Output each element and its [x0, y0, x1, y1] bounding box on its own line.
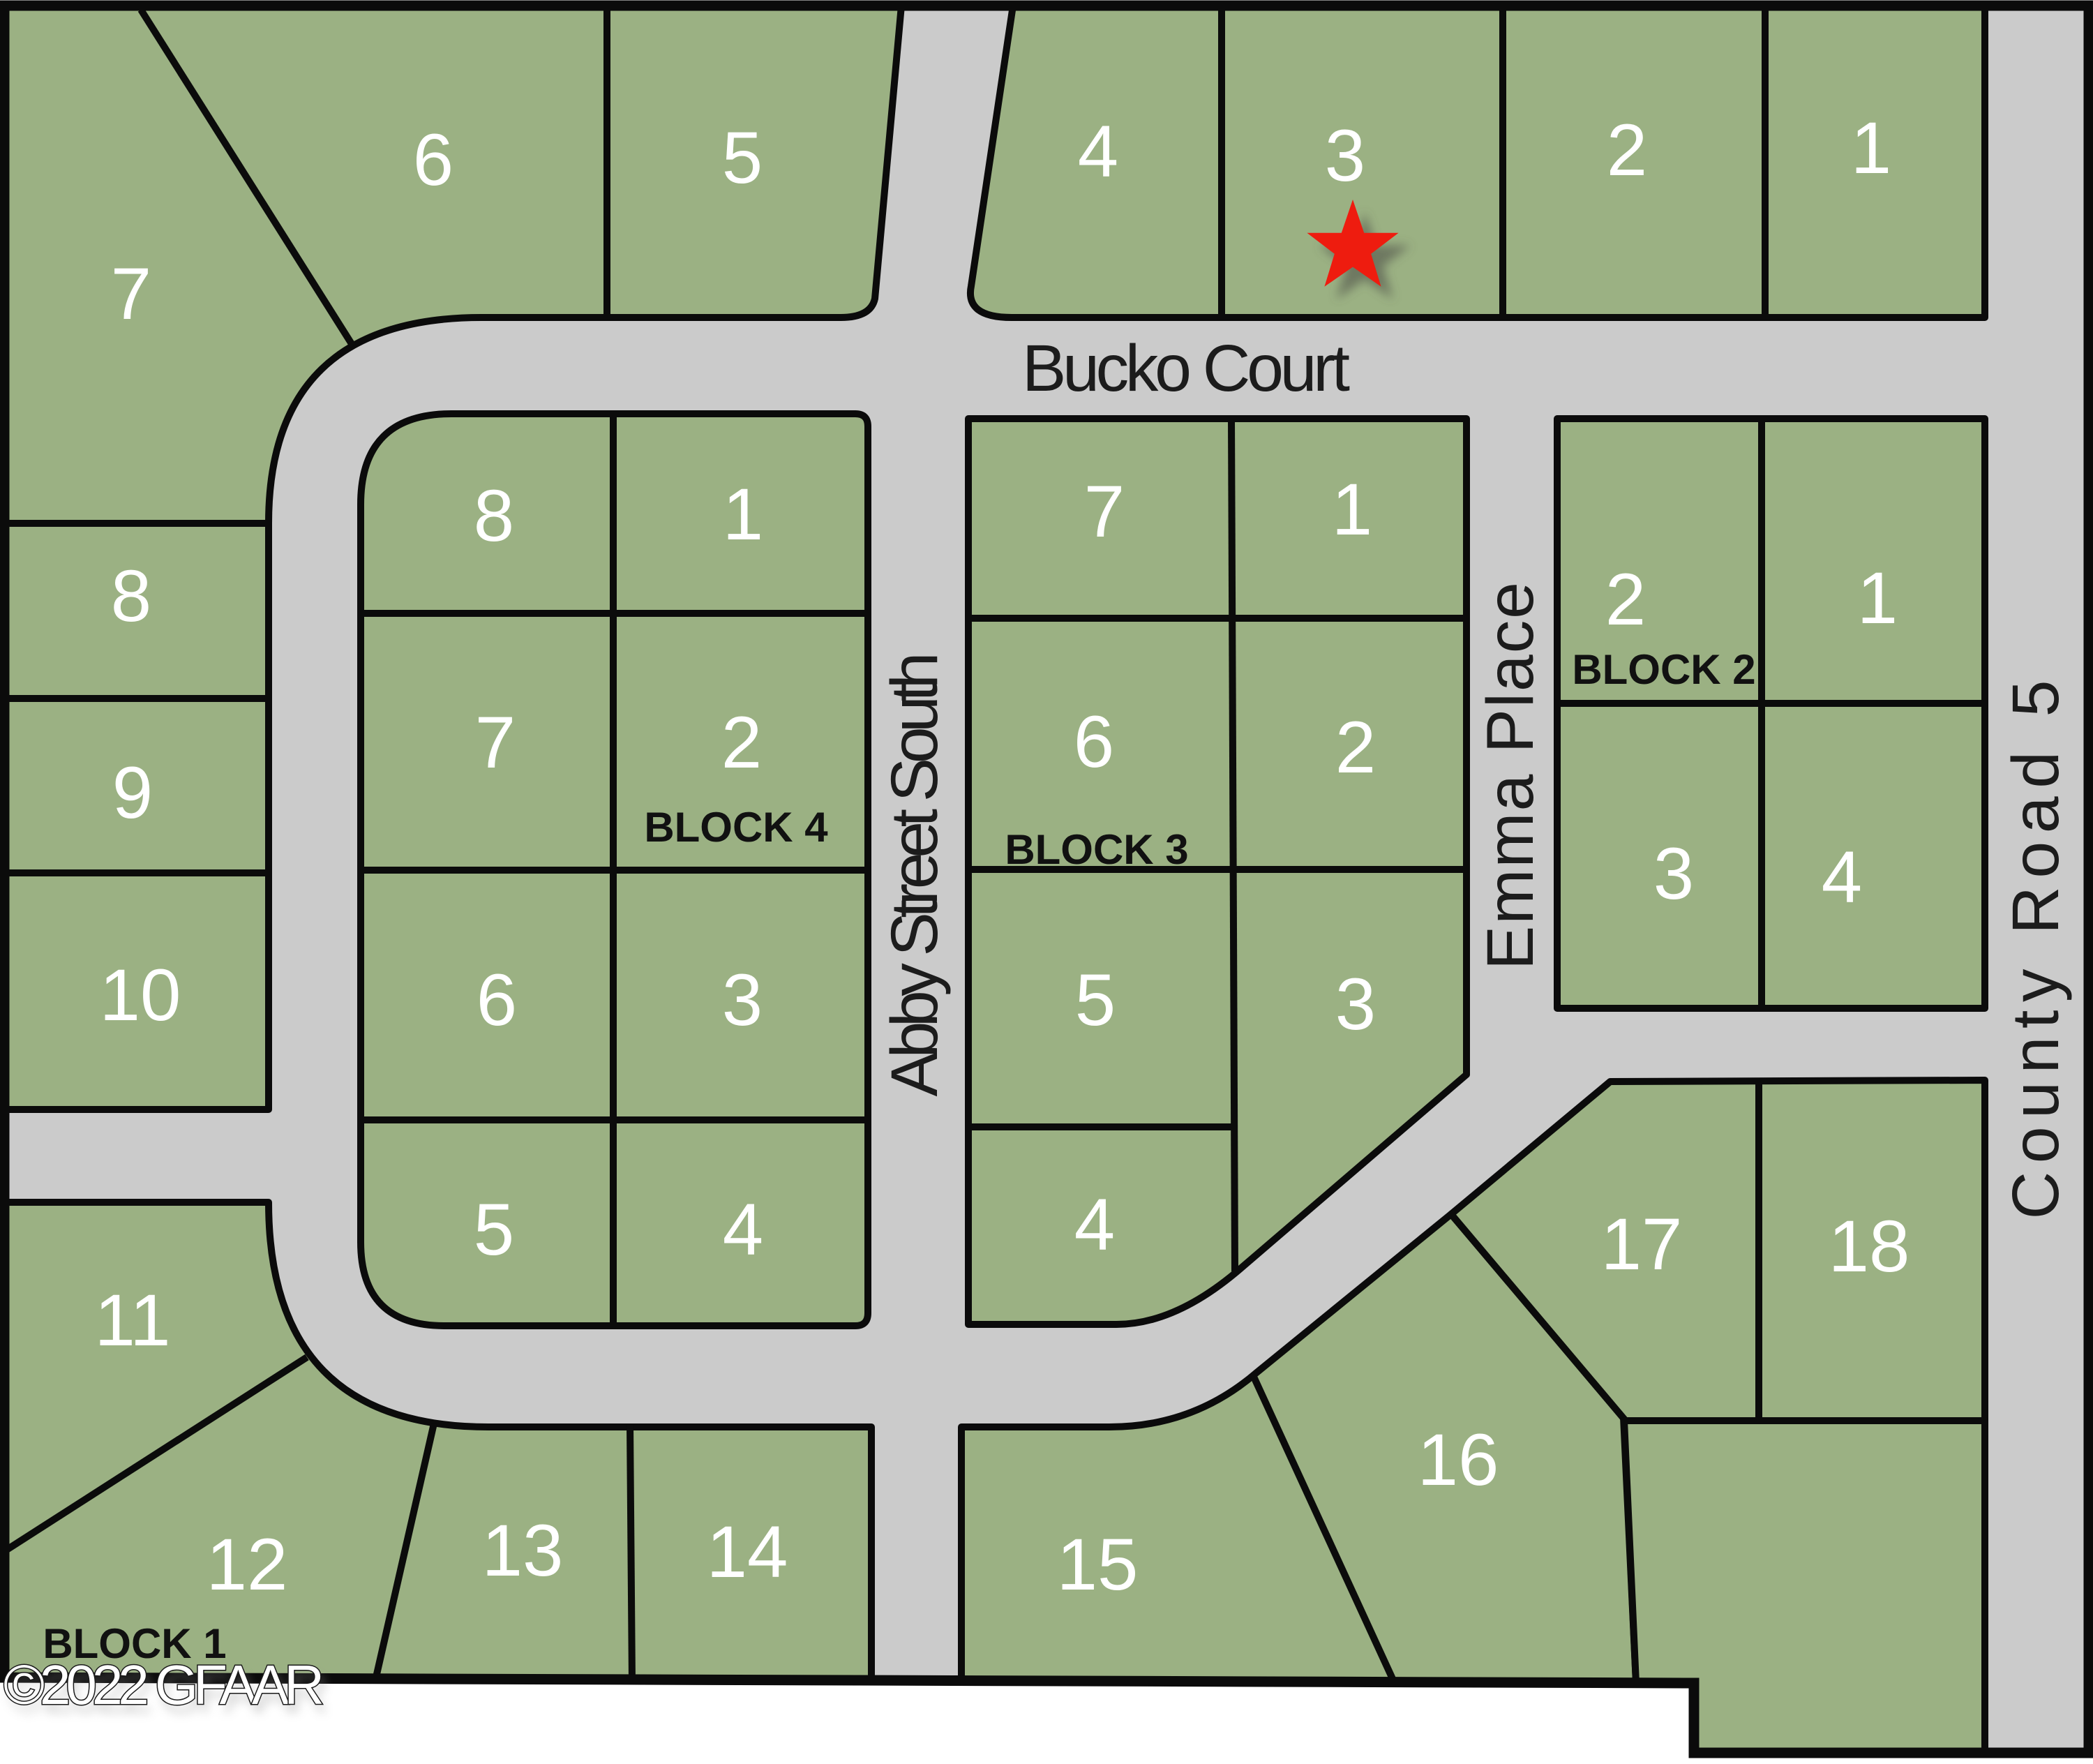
svg-text:18: 18 — [1829, 1206, 1910, 1287]
svg-text:5: 5 — [474, 1189, 514, 1271]
svg-text:12: 12 — [207, 1524, 288, 1606]
svg-text:11: 11 — [95, 1280, 171, 1361]
svg-text:15: 15 — [1057, 1524, 1139, 1606]
svg-text:3: 3 — [1325, 115, 1365, 197]
svg-text:14: 14 — [707, 1511, 788, 1593]
svg-text:6: 6 — [1074, 701, 1114, 783]
svg-text:10: 10 — [100, 955, 181, 1036]
svg-text:Bucko Court: Bucko Court — [1022, 331, 1350, 405]
svg-text:4: 4 — [1078, 111, 1118, 193]
svg-text:County Road 5: County Road 5 — [1999, 680, 2073, 1220]
svg-text:BLOCK 4: BLOCK 4 — [644, 804, 828, 851]
svg-text:2: 2 — [1335, 707, 1376, 788]
svg-text:5: 5 — [1075, 959, 1116, 1041]
svg-text:17: 17 — [1601, 1204, 1683, 1285]
svg-text:13: 13 — [482, 1510, 564, 1592]
svg-text:4: 4 — [723, 1189, 763, 1271]
svg-text:3: 3 — [722, 959, 763, 1041]
svg-text:3: 3 — [1653, 833, 1694, 915]
svg-text:2: 2 — [721, 702, 762, 784]
svg-text:7: 7 — [111, 253, 151, 335]
svg-text:Emma Place: Emma Place — [1473, 582, 1547, 970]
svg-text:8: 8 — [111, 555, 151, 637]
svg-text:©2022 GFAAR: ©2022 GFAAR — [3, 1654, 324, 1716]
svg-text:6: 6 — [477, 959, 517, 1041]
svg-text:Abby Street South: Abby Street South — [878, 652, 952, 1097]
svg-text:7: 7 — [475, 702, 516, 784]
svg-text:6: 6 — [413, 119, 453, 201]
svg-text:16: 16 — [1418, 1419, 1499, 1501]
svg-text:1: 1 — [1332, 469, 1372, 551]
svg-text:1: 1 — [723, 474, 763, 555]
svg-text:4: 4 — [1074, 1184, 1115, 1266]
svg-text:8: 8 — [474, 475, 514, 557]
svg-text:2: 2 — [1605, 559, 1646, 641]
svg-text:2: 2 — [1607, 110, 1647, 191]
svg-text:9: 9 — [112, 752, 153, 834]
svg-text:7: 7 — [1084, 471, 1125, 553]
svg-text:BLOCK 2: BLOCK 2 — [1572, 646, 1755, 693]
svg-text:3: 3 — [1335, 964, 1376, 1045]
svg-text:1: 1 — [1851, 107, 1891, 189]
svg-text:4: 4 — [1822, 837, 1862, 918]
svg-text:1: 1 — [1857, 558, 1898, 639]
svg-text:BLOCK 3: BLOCK 3 — [1005, 826, 1188, 873]
svg-text:5: 5 — [722, 117, 763, 199]
